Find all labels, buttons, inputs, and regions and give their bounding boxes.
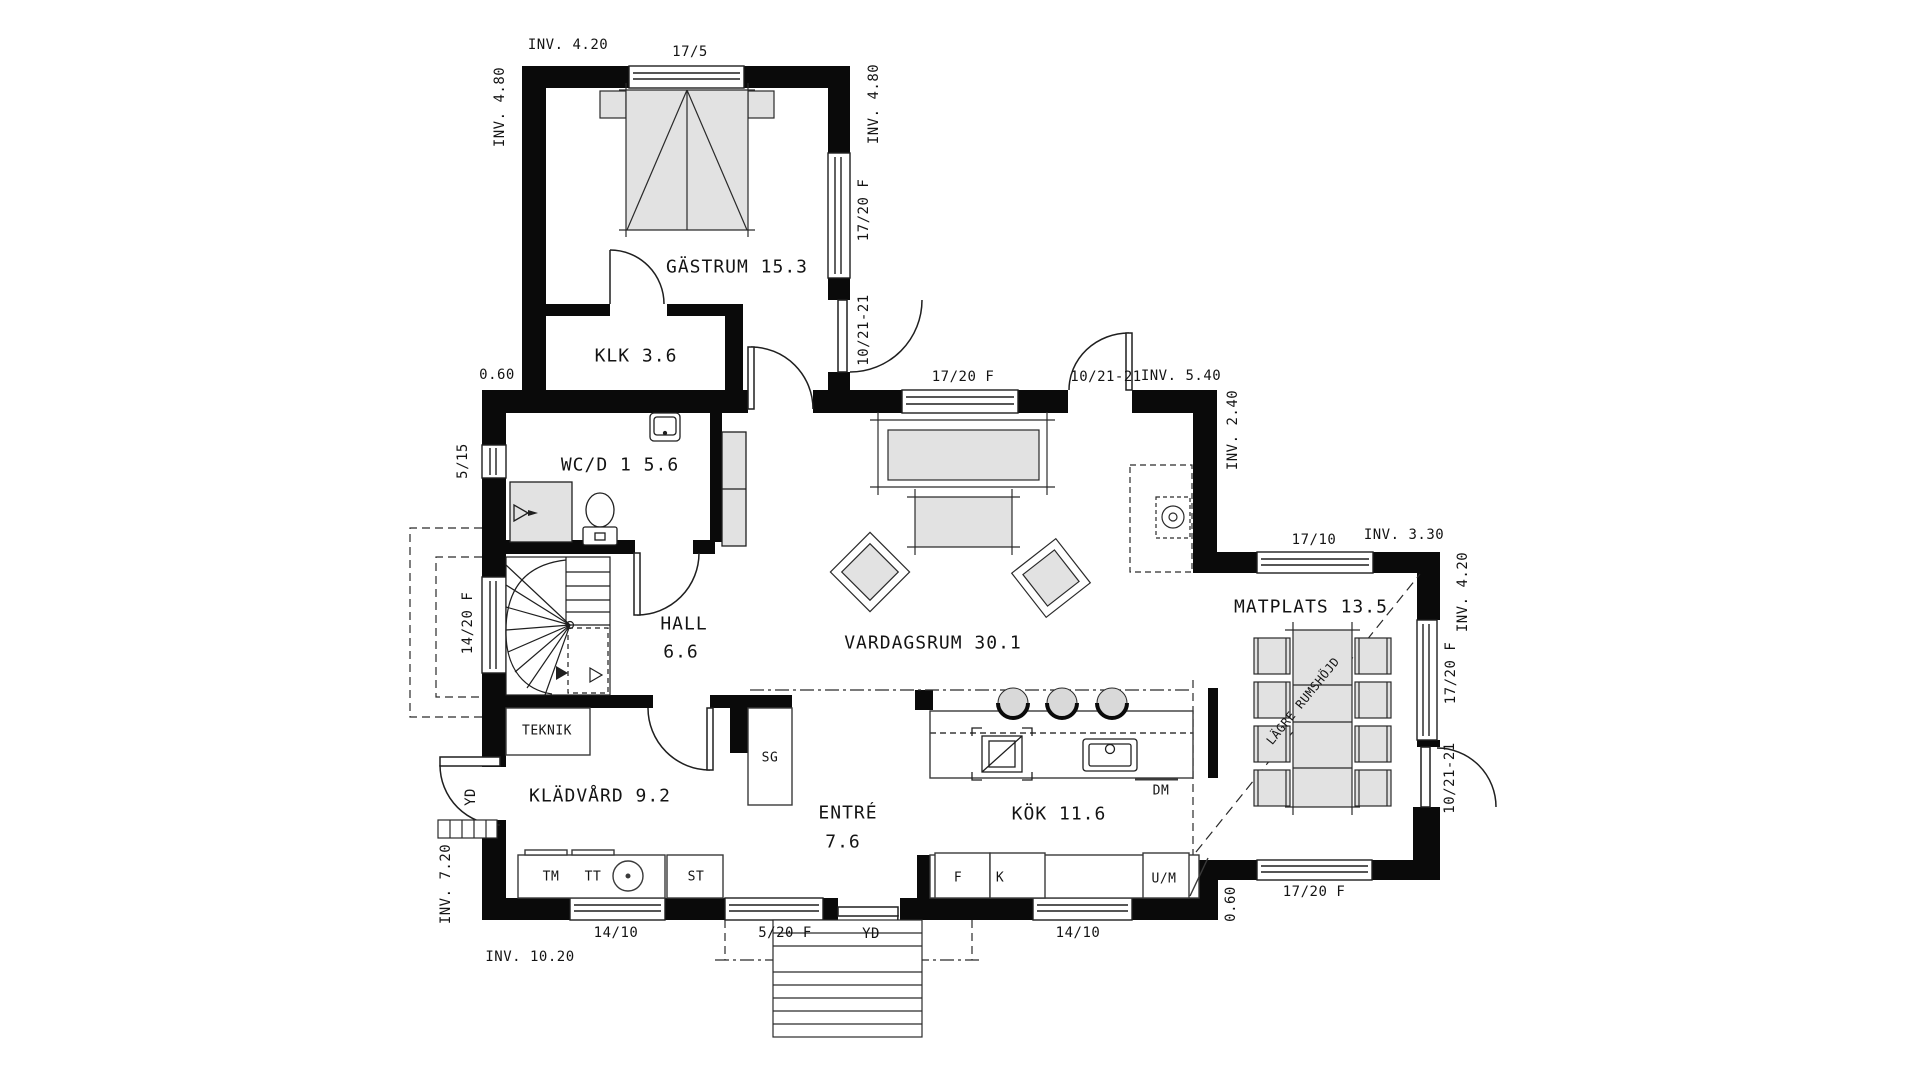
tag-win-17-20f-vardagsrum: 17/20 F [932,369,995,385]
nightstand-left [600,91,626,118]
wcd-sink [650,413,680,441]
fridge-label: F [954,871,962,886]
dim-inv-330: INV. 3.30 [1364,527,1444,543]
room-label-entre: ENTRÉ [818,803,877,824]
freezer-label: K [996,871,1004,886]
window-14-10-kladvard [570,898,665,920]
tag-win-14-10-kok: 14/10 [1056,925,1101,941]
room-label-kladvard: KLÄDVÅRD 9.2 [529,786,671,807]
dim-inv-420-right: INV. 4.20 [1455,552,1471,632]
dim-inv-540: INV. 5.40 [1141,368,1221,384]
dim-inv-1020: INV. 10.20 [485,949,574,965]
sg-label: SG [762,751,779,766]
dishwasher-label: DM [1153,784,1170,799]
exterior-steps [438,820,922,1037]
tm-label: TM [543,870,560,885]
tag-win-17-20f-gastrum: 17/20 F [856,179,872,242]
floor-plan-drawing [0,0,1920,1080]
vardagsrum-furniture [830,412,1192,617]
toilet [583,493,617,545]
room-label-matplats: MATPLATS 13.5 [1234,597,1388,618]
kitchen-island [930,711,1193,778]
door-kladvard [648,708,713,770]
tag-door-10-21-gastrum: 10/21-21 [856,294,872,365]
tag-win-17-10: 17/10 [1292,532,1337,548]
room-area-hall: 6.6 [663,642,699,663]
teknik-label: TEKNIK [522,724,572,739]
dim-inv-240: INV. 2.40 [1225,390,1241,470]
tag-win-17-5: 17/5 [672,44,708,60]
oven-micro-label: U/M [1152,872,1177,887]
window-17-20f-vardagsrum [902,390,1018,413]
laundry-bench-top-2 [572,850,614,855]
dim-inv-480-left: INV. 4.80 [492,67,508,147]
stool [1097,688,1127,718]
window-5-20f-sidelight [725,898,823,920]
window-17-20f-gastrum [828,153,850,278]
fireplace [1130,465,1192,572]
tag-win-5-20f: 5/20 F [758,925,812,941]
window-14-20f [482,577,506,673]
room-area-entre: 7.6 [825,832,861,853]
nightstand-right [748,91,774,118]
dim-inv-720: INV. 7.20 [438,844,454,924]
side-door-steps [438,820,497,838]
dim-offset-060-left: 0.60 [479,367,515,383]
room-label-klk: KLK 3.6 [595,346,678,367]
room-label-gastrum: GÄSTRUM 15.3 [666,257,808,278]
room-label-hall: HALL [660,614,707,635]
stool [1047,688,1077,718]
room-label-kok: KÖK 11.6 [1012,804,1107,825]
bar-stools [998,688,1127,718]
kok-sink [1083,739,1137,771]
armchair-right [1012,539,1091,618]
tt-label: TT [585,870,602,885]
coffee-table [907,489,1020,555]
shower [510,482,572,542]
gastrum-furniture [600,83,774,237]
floor-plan: GÄSTRUM 15.3 KLK 3.6 WC/D 1 5.6 HALL 6.6… [0,0,1920,1080]
tag-win-5-15: 5/15 [455,443,471,479]
window-17-10 [1257,552,1373,573]
tag-win-17-20f-matplats-south: 17/20 F [1283,884,1346,900]
fridge-box [935,853,990,898]
tag-door-10-21-matplats: 10/21-21 [1442,742,1458,813]
window-5-15 [482,445,506,478]
tag-door-10-21-vardagsrum: 10/21-21 [1070,369,1141,385]
window-17-5 [629,66,744,88]
tag-win-14-20f: 14/20 F [460,592,476,655]
laundry-bench-top-1 [525,850,567,855]
tag-yd-front: YD [862,926,880,942]
staircase [506,557,610,695]
room-label-vardagsrum: VARDAGSRUM 30.1 [844,633,1022,654]
door-wcd [634,553,699,615]
sofa [870,412,1055,495]
laundry-sink-drain [626,874,630,878]
matplats-furniture [1254,622,1391,815]
door-klk [610,250,664,304]
tag-yd-side: YD [463,788,479,806]
stool [998,688,1028,718]
door-10-21-gastrum-ext [828,300,922,372]
armchair-left [830,532,909,611]
tag-win-14-10-left: 14/10 [594,925,639,941]
dim-offset-060-right: 0.60 [1223,886,1239,922]
dim-inv-420-top: INV. 4.20 [528,37,608,53]
dim-inv-480-right: INV. 4.80 [866,64,882,144]
room-label-wcd: WC/D 1 5.6 [561,455,679,476]
door-corridor-hall [748,347,813,409]
window-14-10-kok [1033,898,1132,920]
st-label: ST [688,870,705,885]
window-17-20f-matplats-east [1417,620,1437,740]
window-17-20f-matplats-south [1257,860,1372,880]
tag-win-17-20f-matplats-east: 17/20 F [1443,642,1459,705]
bed [619,83,755,237]
